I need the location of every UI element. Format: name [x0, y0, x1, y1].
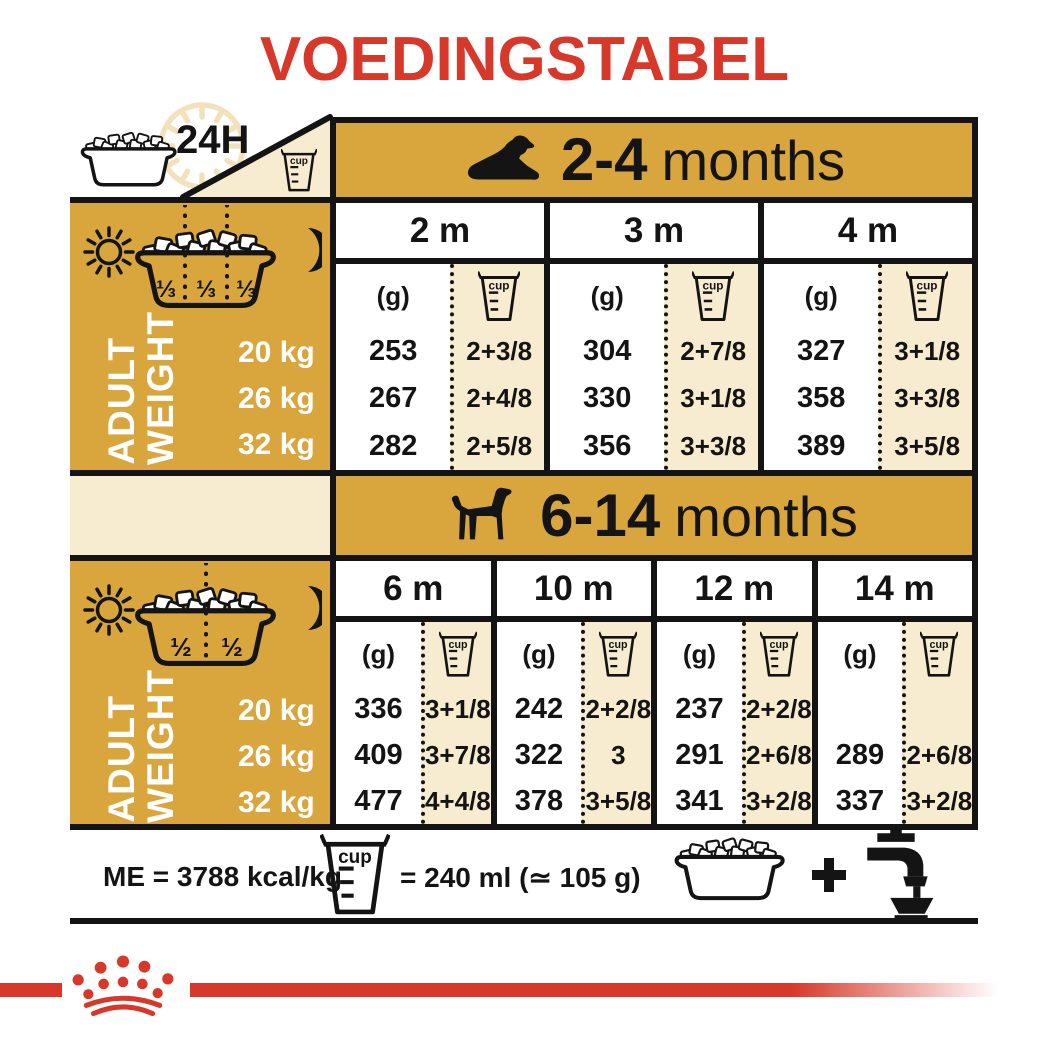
feeding-grid-6-14-months: 6 m (g) 336 409 477 3+1/8 3+7/8 4+4/8 10… — [330, 555, 978, 830]
food-bowl-icon — [652, 830, 808, 914]
plus-icon — [812, 858, 846, 892]
section-header-6-14-months: 6-14 months — [330, 470, 978, 555]
weight-list: 20 kg 26 kg 32 kg — [238, 688, 315, 826]
weight-list: 20 kg 26 kg 32 kg — [238, 330, 315, 468]
cups-value: 2+2/8 — [746, 686, 812, 732]
grams-value: 253 — [336, 328, 450, 375]
cups-value: 2+6/8 — [746, 732, 812, 778]
grams-value: 378 — [497, 778, 582, 824]
bowl-fraction: ½ — [221, 632, 243, 662]
grams-value: 327 — [764, 328, 878, 375]
month-header: 10 m — [497, 561, 652, 622]
cup-equivalence-note: = 240 ml (≃ 105 g) — [400, 861, 641, 894]
royal-canin-crown-logo — [70, 952, 176, 1018]
cups-value: 2+6/8 — [906, 732, 972, 778]
grams-unit-label: (g) — [336, 264, 450, 328]
month-header: 2 m — [336, 203, 544, 264]
grams-value: 330 — [550, 375, 664, 422]
month-column-2m: 2 m (g) 253 267 282 2+3/8 2+4/8 2+5/8 — [336, 203, 544, 470]
weight-text: WEIGHT — [143, 311, 178, 465]
cups-value: 3+1/8 — [425, 686, 491, 732]
cups-value: 3+3/8 — [668, 423, 758, 470]
grams-value: 237 — [657, 686, 742, 732]
month-column-6m: 6 m (g) 336 409 477 3+1/8 3+7/8 4+4/8 — [336, 561, 491, 824]
cups-value: 4+4/8 — [425, 778, 491, 824]
adult-weight-label: ADULT WEIGHT — [104, 329, 178, 465]
grams-unit-label: (g) — [497, 622, 582, 686]
grams-unit-label: (g) — [550, 264, 664, 328]
cups-value: 3+5/8 — [882, 423, 972, 470]
cups-value: 2+3/8 — [454, 328, 544, 375]
grams-value: 242 — [497, 686, 582, 732]
moon-icon — [288, 227, 322, 273]
measuring-cup-icon — [920, 629, 958, 679]
age-range: 2-4 — [561, 130, 648, 190]
cups-value: 2+5/8 — [454, 423, 544, 470]
food-bowl-icon — [80, 122, 178, 202]
feeding-table-infographic: VOEDINGSTABEL 24H 2-4 months — [0, 0, 1049, 1049]
month-column-4m: 4 m (g) 327 358 389 3+1/8 3+3/8 3+5/8 — [758, 203, 972, 470]
grams-value: 358 — [764, 375, 878, 422]
measuring-cup-icon — [439, 629, 477, 679]
weight-row: 26 kg — [238, 376, 315, 422]
cups-value: 3+5/8 — [585, 778, 651, 824]
cups-value: 3+7/8 — [425, 732, 491, 778]
bowl-fraction: ⅓ — [196, 276, 216, 303]
grams-value: 356 — [550, 423, 664, 470]
weight-row: 32 kg — [238, 422, 315, 468]
measuring-cup-icon — [906, 269, 948, 323]
cups-value: 2+4/8 — [454, 375, 544, 422]
divider-rule — [70, 918, 978, 924]
spacer-block — [70, 470, 330, 555]
month-column-3m: 3 m (g) 304 330 356 2+7/8 3+1/8 3+3/8 — [544, 203, 758, 470]
adult-weight-panel-2: ½ ½ ADULT WEIGHT 20 kg 26 kg 32 kg — [70, 555, 330, 830]
weight-row: 20 kg — [238, 330, 315, 376]
grams-value: 341 — [657, 778, 742, 824]
grams-unit-label: (g) — [336, 622, 421, 686]
month-header: 4 m — [764, 203, 972, 264]
grams-unit-label: (g) — [657, 622, 742, 686]
page-title: VOEDINGSTABEL — [0, 24, 1049, 95]
age-unit: months — [674, 489, 858, 545]
month-column-14m: 14 m (g) 289 337 2+6/8 3+2/8 — [812, 561, 973, 824]
grams-value: 289 — [818, 732, 903, 778]
grams-value: 291 — [657, 732, 742, 778]
feeding-grid-2-4-months: 2 m (g) 253 267 282 2+3/8 2+4/8 2+5/8 3 … — [330, 197, 978, 470]
month-header: 12 m — [657, 561, 812, 622]
moon-icon — [288, 585, 322, 631]
water-tap-icon — [852, 826, 940, 918]
adult-weight-label: ADULT WEIGHT — [104, 687, 178, 823]
grams-value: 322 — [497, 732, 582, 778]
weight-text: WEIGHT — [143, 669, 178, 823]
adult-weight-panel-1: ⅓ ⅓ ⅓ ADULT WEIGHT 20 kg 26 kg 32 kg — [70, 197, 330, 470]
cups-value: 3+2/8 — [906, 778, 972, 824]
cups-value: 3+2/8 — [746, 778, 812, 824]
grams-unit-label: (g) — [818, 622, 903, 686]
month-header: 14 m — [818, 561, 973, 622]
grams-value: 336 — [336, 686, 421, 732]
cups-value: 2+2/8 — [585, 686, 651, 732]
grams-value: 389 — [764, 423, 878, 470]
measuring-cup-icon — [760, 629, 798, 679]
brand-band-left — [0, 983, 62, 997]
weight-row: 20 kg — [238, 688, 315, 734]
grams-value — [818, 686, 903, 732]
grams-value: 304 — [550, 328, 664, 375]
month-header: 3 m — [550, 203, 758, 264]
grams-value: 409 — [336, 732, 421, 778]
grams-value: 267 — [336, 375, 450, 422]
grams-value: 282 — [336, 423, 450, 470]
puppy-icon — [463, 132, 541, 188]
cups-value: 3+3/8 — [882, 375, 972, 422]
measuring-cup-icon — [320, 832, 390, 916]
measuring-cup-icon — [599, 629, 637, 679]
adult-text: ADULT — [104, 337, 139, 465]
section-header-2-4-months: 2-4 months — [330, 117, 978, 197]
bowl-fraction: ⅓ — [156, 276, 176, 303]
brand-band-right — [190, 983, 1049, 997]
month-column-12m: 12 m (g) 237 291 341 2+2/8 2+6/8 3+2/8 — [651, 561, 812, 824]
bowl-fraction: ⅓ — [236, 276, 256, 303]
weight-row: 26 kg — [238, 734, 315, 780]
measuring-cup-icon — [478, 269, 520, 323]
age-range: 6-14 — [540, 486, 660, 546]
month-column-10m: 10 m (g) 242 322 378 2+2/8 3 3+5/8 — [491, 561, 652, 824]
cups-value: 3 — [585, 732, 651, 778]
grams-value: 477 — [336, 778, 421, 824]
adult-text: ADULT — [104, 695, 139, 823]
age-unit: months — [662, 133, 846, 189]
weight-row: 32 kg — [238, 780, 315, 826]
metabolizable-energy-note: ME = 3788 kcal/kg — [103, 861, 342, 893]
bowl-fraction: ½ — [170, 632, 192, 662]
cups-value: 2+7/8 — [668, 328, 758, 375]
cups-value: 3+1/8 — [668, 375, 758, 422]
adult-dog-icon — [450, 483, 520, 549]
measuring-cup-icon — [692, 269, 734, 323]
month-header: 6 m — [336, 561, 491, 622]
measuring-cup-icon — [281, 145, 317, 195]
cups-value — [906, 686, 972, 732]
grams-value: 337 — [818, 778, 903, 824]
grams-unit-label: (g) — [764, 264, 878, 328]
cups-value: 3+1/8 — [882, 328, 972, 375]
